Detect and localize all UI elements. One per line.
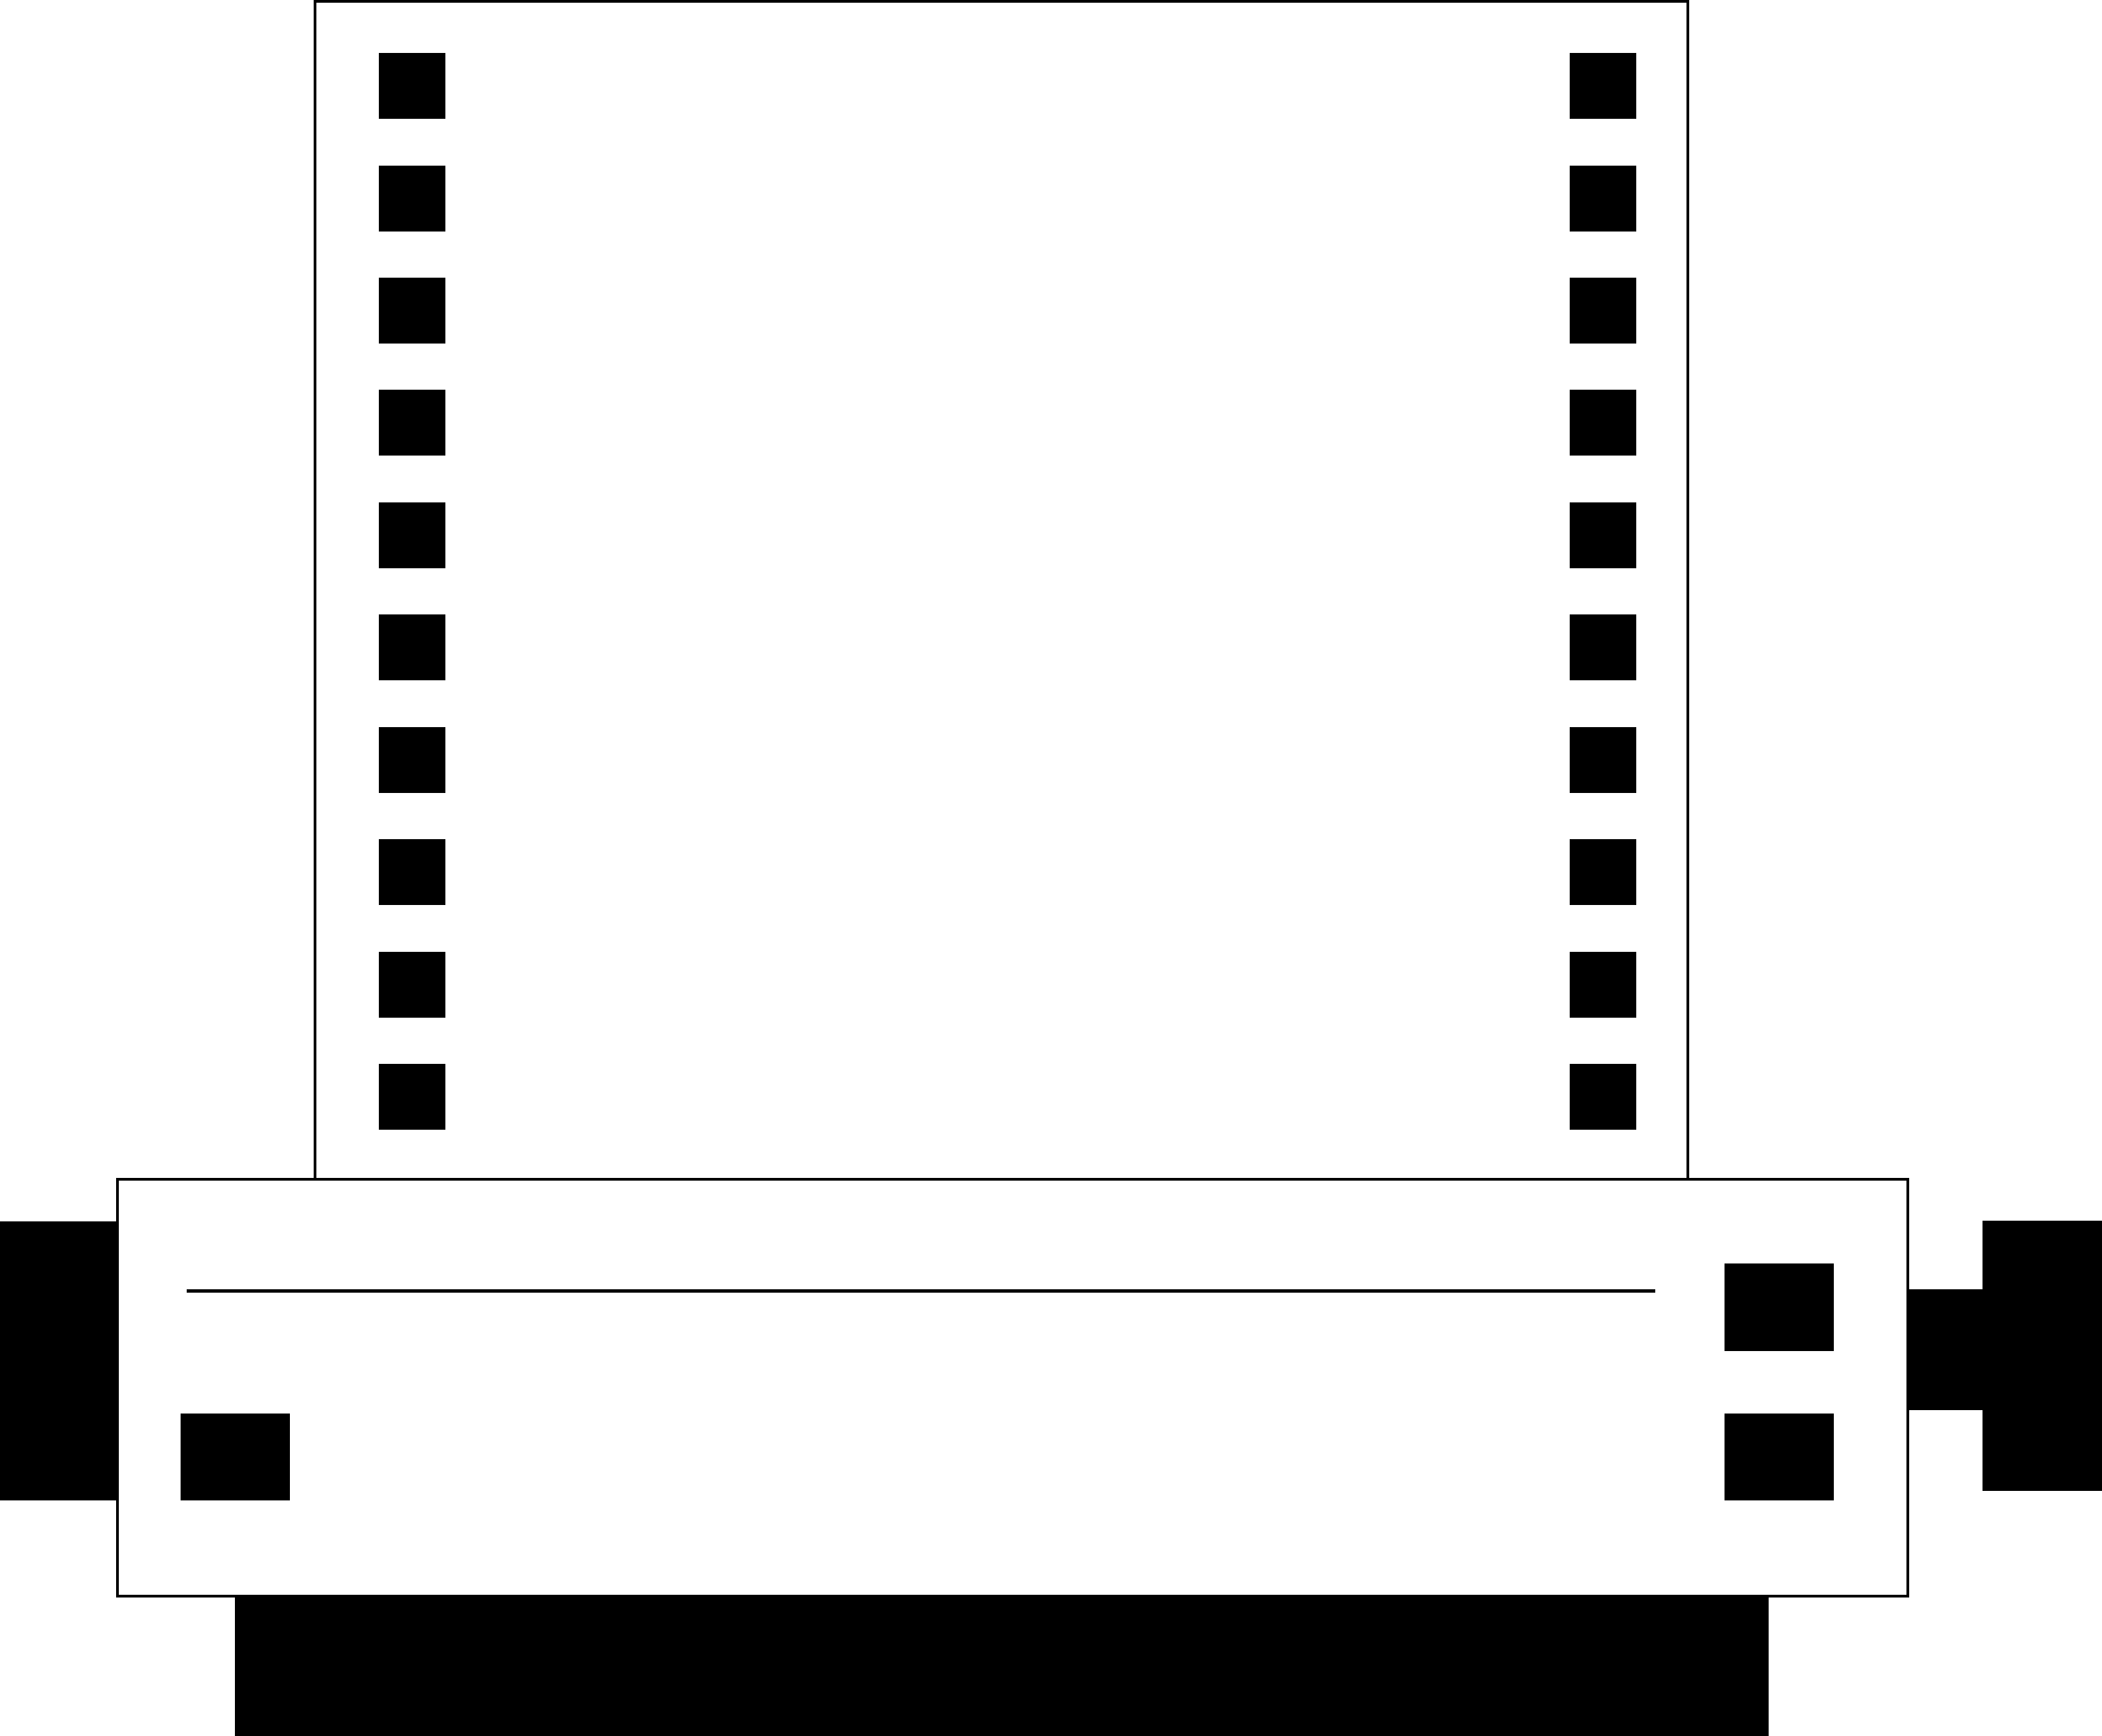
feed-hole-right [1570,390,1636,456]
feed-hole-right [1570,952,1636,1018]
right-platen-knob-cap [1983,1221,2102,1491]
feed-hole-left [379,614,445,680]
feed-hole-right [1570,839,1636,905]
feed-hole-right [1570,614,1636,680]
feed-hole-left [379,278,445,344]
feed-hole-left [379,390,445,456]
paper-slot-line [187,1289,1655,1293]
feed-hole-right [1570,727,1636,793]
printer-clipart-canvas [0,0,2102,1736]
feed-hole-right [1570,502,1636,568]
right-platen-knob-shaft [1909,1289,1983,1410]
continuous-paper-sheet [314,0,1689,1181]
feed-hole-right [1570,278,1636,344]
printer-button-left [181,1414,290,1500]
feed-hole-right [1570,53,1636,119]
feed-hole-left [379,1064,445,1130]
left-platen-knob [0,1221,116,1500]
feed-hole-left [379,53,445,119]
feed-hole-left [379,727,445,793]
printer-button-right-upper [1725,1263,1834,1351]
feed-hole-left [379,839,445,905]
printer-button-right-lower [1725,1414,1834,1500]
feed-hole-right [1570,1064,1636,1130]
feed-hole-right [1570,166,1636,232]
output-tray-bar [235,1598,1769,1736]
printer-body [116,1178,1909,1598]
feed-hole-left [379,952,445,1018]
feed-hole-left [379,502,445,568]
feed-hole-left [379,166,445,232]
